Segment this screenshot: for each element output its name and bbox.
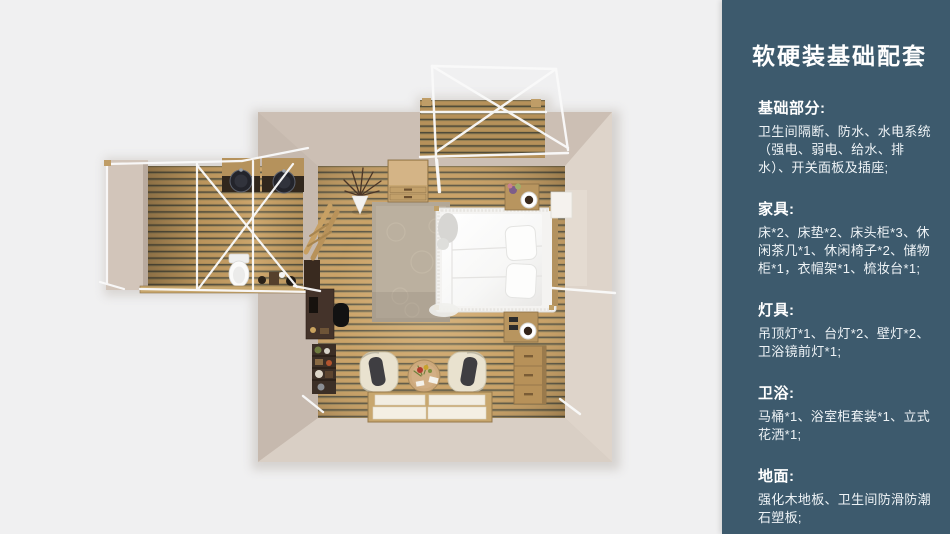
spec-sections: 基础部分: 卫生间隔断、防水、水电系统（强电、弱电、给水、排水）、开关面板及插座… [742, 99, 937, 527]
drawer-chest [514, 346, 546, 404]
section-furniture-body: 床*2、床垫*2、床头柜*3、休闲茶几*1、休闲椅子*2、储物柜*1，衣帽架*1… [758, 224, 936, 278]
doorway [304, 260, 320, 290]
section-bathroom: 卫浴: 马桶*1、浴室柜套装*1、立式花洒*1; [758, 384, 936, 444]
desk-chair [333, 303, 349, 327]
slide: 软硬装基础配套 基础部分: 卫生间隔断、防水、水电系统（强电、弱电、给水、排水）… [0, 0, 950, 534]
bed-fringe [429, 303, 459, 317]
bathroom-annex [100, 148, 314, 293]
section-lighting: 灯具: 吊顶灯*1、台灯*2、壁灯*2、卫浴镜前灯*1; [758, 301, 936, 361]
wall-panel [551, 192, 572, 218]
nightstand-bottom [504, 312, 538, 342]
section-bathroom-body: 马桶*1、浴室柜套装*1、立式花洒*1; [758, 408, 936, 444]
room-render-area [0, 0, 722, 534]
section-bathroom-heading: 卫浴: [758, 384, 936, 403]
wash-basin-counters [222, 158, 304, 193]
spec-panel: 软硬装基础配套 基础部分: 卫生间隔断、防水、水电系统（强电、弱电、给水、排水）… [722, 0, 950, 534]
desk [306, 289, 334, 339]
annex-left-wall [106, 160, 148, 290]
section-furniture-heading: 家具: [758, 200, 936, 219]
section-flooring-heading: 地面: [758, 467, 936, 486]
storage-cabinet [388, 160, 428, 202]
panel-title: 软硬装基础配套 [742, 42, 937, 70]
section-basics: 基础部分: 卫生间隔断、防水、水电系统（强电、弱电、给水、排水）、开关面板及插座… [758, 99, 936, 177]
armchair-right [448, 352, 486, 393]
section-flooring-body: 强化木地板、卫生间防滑防潮石塑板; [758, 491, 936, 527]
bed [429, 206, 558, 317]
tea-table [408, 360, 440, 392]
display-shelf [312, 344, 336, 394]
toilet [229, 254, 249, 287]
section-furniture: 家具: 床*2、床垫*2、床头柜*3、休闲茶几*1、休闲椅子*2、储物柜*1，衣… [758, 200, 936, 278]
floorplan-render [0, 0, 722, 534]
nightstand-top [505, 184, 539, 211]
floor-platform [368, 392, 492, 422]
section-lighting-heading: 灯具: [758, 301, 936, 320]
section-basics-heading: 基础部分: [758, 99, 936, 118]
armchair-left [360, 352, 398, 393]
section-lighting-body: 吊顶灯*1、台灯*2、壁灯*2、卫浴镜前灯*1; [758, 325, 936, 361]
section-flooring: 地面: 强化木地板、卫生间防滑防潮石塑板; [758, 467, 936, 527]
section-basics-body: 卫生间隔断、防水、水电系统（强电、弱电、给水、排水）、开关面板及插座; [758, 123, 936, 177]
